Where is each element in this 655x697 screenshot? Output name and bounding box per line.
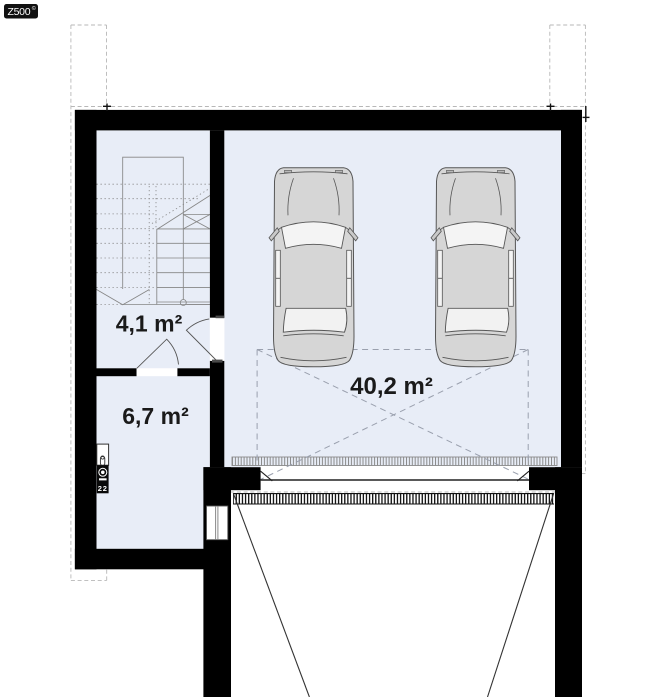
svg-text:4,1 m²: 4,1 m² — [116, 311, 183, 337]
svg-text:Z500: Z500 — [8, 6, 31, 18]
svg-text:6,7 m²: 6,7 m² — [122, 403, 189, 429]
svg-text:©: © — [32, 5, 36, 12]
svg-text:40,2 m²: 40,2 m² — [350, 373, 433, 400]
svg-text:2: 2 — [103, 484, 107, 493]
svg-text:2: 2 — [98, 484, 102, 493]
